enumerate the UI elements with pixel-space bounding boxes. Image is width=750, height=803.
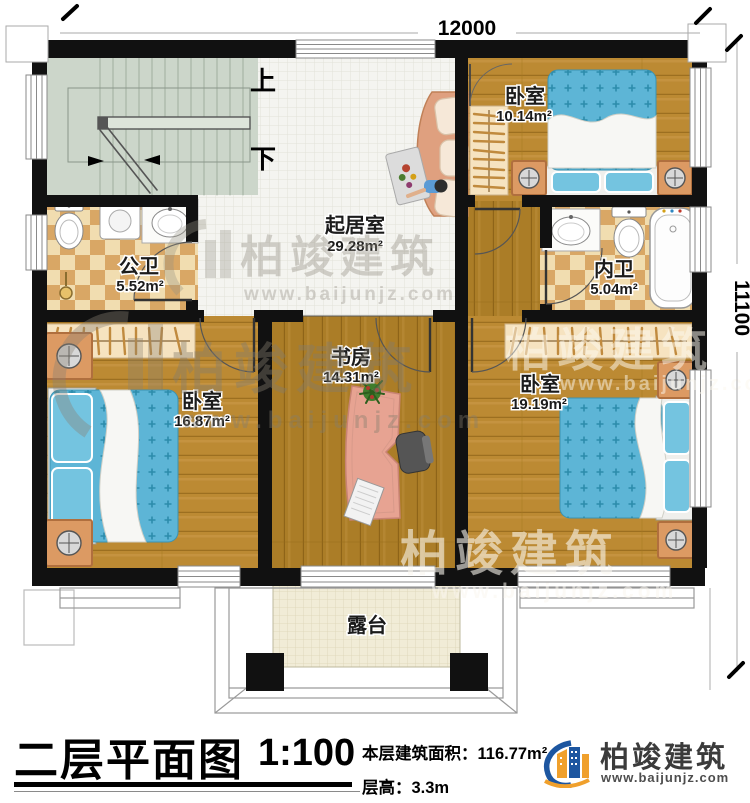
window-top [296, 40, 435, 58]
title-underline-thin [14, 791, 360, 792]
brand-logo-icon [541, 740, 593, 788]
dim-width: 12000 [438, 17, 496, 40]
label-public-bath-area: 5.52m² [116, 278, 164, 295]
label-bedroom-top-area: 10.14m² [496, 108, 552, 125]
bathtub [650, 208, 696, 308]
toilet [55, 201, 83, 249]
terrace-column-right [450, 653, 488, 691]
svg-text:www.baijunjz.com: www.baijunjz.com [181, 407, 485, 434]
window-bottom-bedroom-left [178, 566, 240, 587]
label-ensuite-bath: 内卫 [594, 257, 634, 281]
floor-area-stat: 本层建筑面积：116.77m² [362, 740, 547, 764]
label-stairs-up: 上 [250, 66, 276, 96]
window-right-ensuite [690, 207, 711, 272]
svg-text:www.baijunjz.com: www.baijunjz.com [243, 284, 456, 305]
svg-text:柏竣建筑: 柏竣建筑 [400, 528, 620, 581]
svg-text:www.baijunjz.com: www.baijunjz.com [559, 373, 750, 395]
toilet [612, 207, 646, 257]
label-public-bath: 公卫 [119, 255, 159, 278]
label-bedroom-top: 卧室 [505, 84, 545, 108]
floorplan-page: 卧室 10.14m² 起居室 29.28m² 公卫 5.52m² 内卫 5.04… [0, 0, 750, 803]
svg-text:柏竣建筑: 柏竣建筑 [505, 324, 713, 376]
title-underline-thick [14, 782, 352, 787]
drawing-title: 二层平面图 [14, 724, 244, 788]
stair-handrail [98, 117, 250, 129]
dim-height: 11100 [730, 280, 750, 336]
label-stairs-down: 下 [250, 144, 276, 174]
title-bar: 二层平面图 1:100 本层建筑面积：116.77m² 层高：3.3m 柏竣建筑… [0, 720, 750, 803]
brand-website: www.baijunjz.com [601, 770, 729, 785]
floor-height-stat: 层高：3.3m [362, 774, 449, 798]
floor-area-value: 116.77m² [478, 745, 548, 763]
label-ensuite-bath-area: 5.04m² [590, 281, 638, 298]
svg-text:www.baijunjz.com: www.baijunjz.com [431, 580, 677, 603]
floor-height-value: 3.3m [412, 779, 450, 797]
corner-box-top-right [688, 24, 726, 62]
window-left-stairs [26, 75, 47, 159]
corner-box-top-left [6, 26, 48, 62]
window-right-bedroom-top [690, 68, 711, 167]
window-left-bath [26, 215, 47, 270]
svg-text:柏竣建筑: 柏竣建筑 [240, 233, 440, 282]
svg-text:柏竣建筑: 柏竣建筑 [172, 340, 420, 400]
floorplan-drawing: 卧室 10.14m² 起居室 29.28m² 公卫 5.52m² 内卫 5.04… [0, 0, 750, 720]
label-terrace: 露台 [347, 613, 387, 637]
floor-height-label: 层高： [362, 779, 412, 797]
terrace-column-left [246, 653, 284, 691]
drawing-scale: 1:100 [258, 732, 355, 775]
label-bedroom-right-area: 19.19m² [511, 396, 567, 413]
bed-bedroom-right [560, 396, 694, 520]
floor-area-label: 本层建筑面积： [362, 745, 478, 763]
bed-bedroom-top [546, 70, 658, 196]
